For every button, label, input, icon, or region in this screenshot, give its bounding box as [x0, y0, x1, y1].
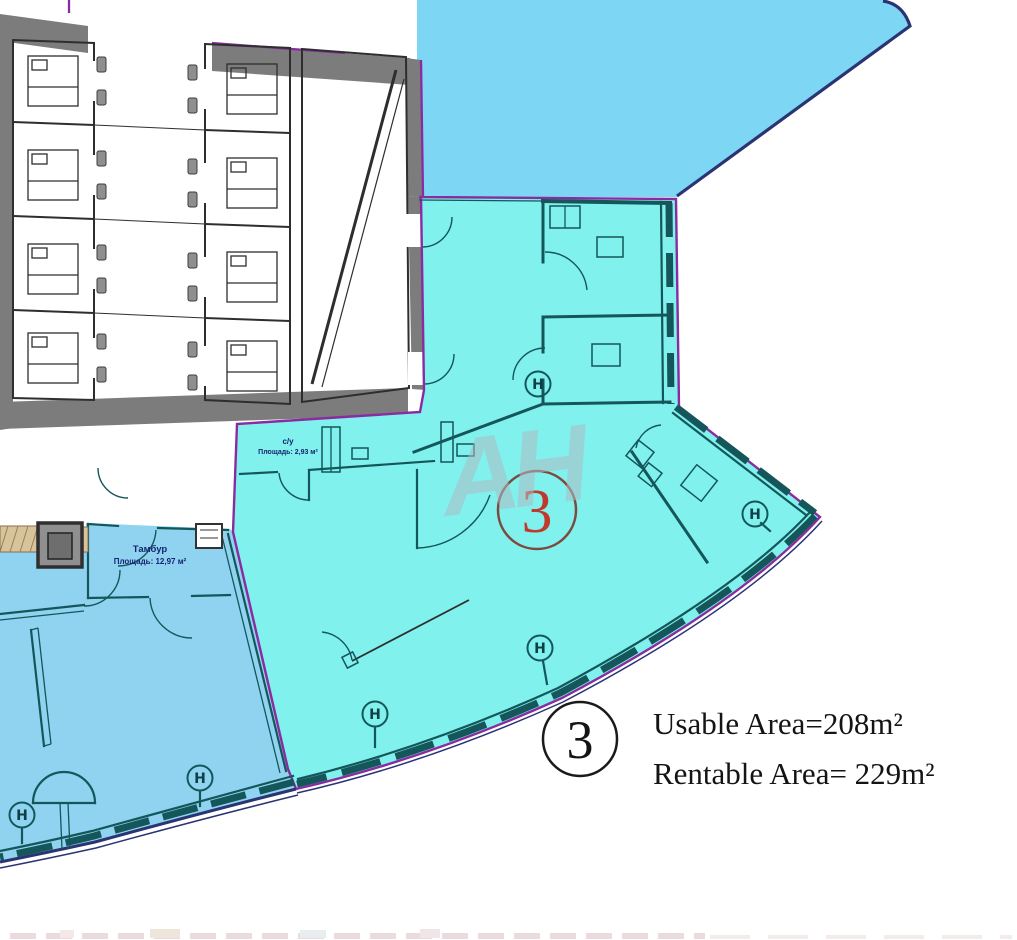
radiator-letter: H: [369, 707, 381, 723]
core-walls: [0, 0, 425, 430]
radiator-letter: H: [534, 641, 546, 657]
elevator-bank-left: [13, 40, 106, 400]
wc-area: Площадь: 2,93 м²: [258, 449, 318, 456]
watermark: AH: [431, 400, 598, 539]
radiator-letter: H: [532, 377, 544, 393]
stairwell: [302, 49, 409, 402]
neighbor-floor: [417, 0, 911, 197]
legend: 3 Usable Area=208m² Rentable Area= 229m²: [543, 702, 935, 791]
cabinet-box: [196, 524, 222, 548]
wc-title: с/у: [282, 437, 294, 446]
legend-rentable-area: Rentable Area= 229m²: [653, 756, 935, 791]
legend-number: 3: [567, 710, 594, 770]
vestibule-area: Площадь: 12,97 м²: [114, 557, 187, 566]
radiator-letter: H: [16, 808, 28, 824]
building-core: [0, 0, 426, 430]
bottom-artifacts: [10, 929, 1012, 938]
radiator-letter: H: [749, 507, 761, 523]
floor-plan-canvas: H H H H с/у Площадь: 2,93 м² 3: [0, 0, 1017, 940]
vestibule-title: Тамбур: [133, 544, 168, 555]
legend-usable-area: Usable Area=208m²: [653, 706, 903, 741]
neighbor-area: [417, 0, 911, 197]
electrical-panel: [38, 523, 82, 567]
radiator-letter: H: [194, 771, 206, 787]
radiator-symbol: H: [526, 372, 551, 397]
